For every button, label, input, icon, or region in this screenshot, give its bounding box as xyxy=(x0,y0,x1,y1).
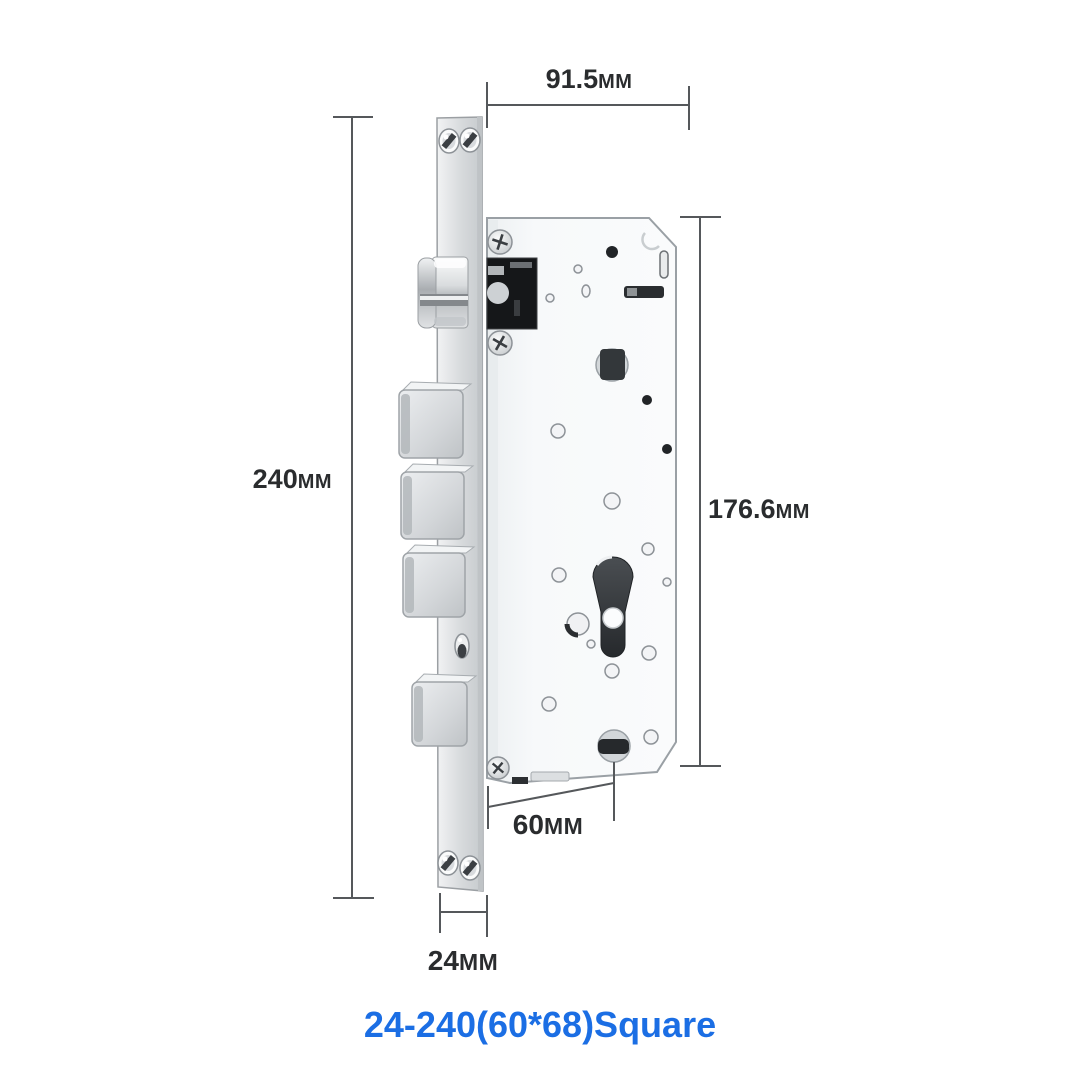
dimension-label-case-height: 176.6MM xyxy=(708,494,810,527)
faceplate-edge xyxy=(477,117,483,891)
lock-diagram-graphic xyxy=(0,0,1080,1080)
dim-unit: MM xyxy=(776,501,810,523)
bottom-bar xyxy=(531,772,569,781)
dimension-line-overall-height xyxy=(333,117,374,898)
bottom-tab xyxy=(512,777,528,784)
dim-unit: MM xyxy=(544,813,583,839)
faceplate-screw-icon xyxy=(460,128,480,152)
latch-window xyxy=(487,258,537,329)
vertical-slot xyxy=(660,251,668,278)
faceplate-screw-icon xyxy=(460,856,480,880)
dimension-line-faceplate-width xyxy=(440,893,487,937)
case-screw-icon xyxy=(487,757,509,779)
case-screw-icon xyxy=(488,230,512,254)
dim-value: 24 xyxy=(428,945,459,976)
dim-value: 60 xyxy=(513,809,544,840)
faceplate-oval-hole xyxy=(455,634,469,658)
handle-follower xyxy=(596,349,628,381)
dimension-label-faceplate-width: 24MM xyxy=(404,946,522,977)
dim-value: 240 xyxy=(253,464,298,494)
case-screw-icon xyxy=(488,331,512,355)
deadbolt-2 xyxy=(401,464,473,539)
dim-unit: MM xyxy=(459,949,498,975)
latch-bolt xyxy=(418,257,468,328)
dim-unit: MM xyxy=(298,471,332,493)
dimension-label-top-width: 91.5MM xyxy=(488,64,690,97)
product-diagram: 91.5MM 240MM 176.6MM 60MM 24MM 24-240(60… xyxy=(0,0,1080,1080)
half-hole xyxy=(567,613,589,635)
lock-case xyxy=(487,218,676,784)
product-caption: 24-240(60*68)Square xyxy=(0,1005,1080,1045)
spindle-slot xyxy=(624,286,664,298)
faceplate-screw-icon xyxy=(438,851,458,875)
deadbolt-4 xyxy=(412,674,476,746)
dim-unit: MM xyxy=(598,71,632,93)
dim-value: 91.5 xyxy=(546,64,599,94)
bottom-spindle xyxy=(598,730,630,762)
deadbolt-3 xyxy=(403,545,474,617)
deadbolt-1 xyxy=(399,382,471,458)
faceplate-screw-icon xyxy=(439,129,459,153)
dim-value: 176.6 xyxy=(708,494,776,524)
dimension-line-case-height xyxy=(680,217,721,766)
dimension-label-case-bottom-width: 60MM xyxy=(488,810,608,841)
dimension-label-overall-height: 240MM xyxy=(212,464,332,497)
